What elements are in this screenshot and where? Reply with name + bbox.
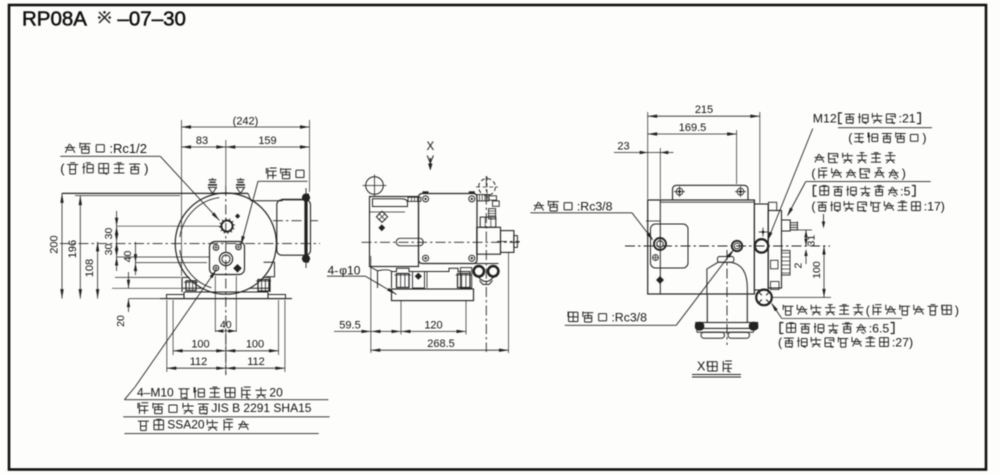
svg-text:59.5: 59.5 [339,319,360,331]
svg-text:159: 159 [258,135,276,147]
svg-text:112: 112 [190,356,208,368]
svg-text::5: :5 [900,184,910,198]
svg-text::Rc3/8: :Rc3/8 [611,311,647,325]
svg-text::Rc1/2: :Rc1/2 [109,141,147,156]
svg-text:4–M10: 4–M10 [137,385,174,399]
svg-text:40: 40 [122,251,134,263]
svg-text:): ) [955,303,959,317]
svg-text:): ) [144,161,148,176]
svg-text:M12: M12 [813,112,837,126]
svg-text:(242): (242) [233,115,259,127]
svg-text:X: X [697,360,706,374]
svg-text:RP08A: RP08A [22,8,87,31]
svg-text:(: ( [60,161,65,176]
svg-text:120: 120 [424,319,442,331]
svg-text:200: 200 [49,235,61,253]
svg-text:100: 100 [811,261,823,279]
svg-text:196: 196 [67,240,79,258]
svg-text::27): :27) [892,336,913,350]
svg-text:100: 100 [191,339,209,351]
svg-text:112: 112 [247,356,265,368]
svg-text:): ) [922,131,926,145]
svg-text:X: X [426,141,434,153]
svg-text::6.5: :6.5 [869,321,890,335]
svg-text:JIS B 2291 SHA15: JIS B 2291 SHA15 [211,401,311,415]
svg-text:169.5: 169.5 [679,122,707,134]
svg-text:2: 2 [793,263,805,269]
svg-text:): ) [902,167,906,181]
svg-text::17): :17) [924,200,945,214]
svg-text:20: 20 [269,385,283,399]
svg-text:83: 83 [196,135,208,147]
svg-text:268.5: 268.5 [427,338,455,350]
svg-text:108: 108 [84,259,96,277]
svg-text:30: 30 [103,244,115,256]
svg-text::21: :21 [899,112,916,126]
svg-text:φ10: φ10 [339,263,360,277]
svg-text:SSA20: SSA20 [167,418,205,432]
svg-text:23: 23 [617,141,629,153]
svg-text:20: 20 [115,315,127,327]
svg-text:–07–30: –07–30 [118,8,186,31]
svg-text::Rc3/8: :Rc3/8 [577,200,613,214]
svg-text:4-: 4- [328,263,339,277]
svg-text:215: 215 [695,104,713,116]
svg-text:31: 31 [806,235,818,247]
svg-text:100: 100 [246,339,264,351]
svg-text:40: 40 [220,319,232,331]
svg-text:30: 30 [103,228,115,240]
